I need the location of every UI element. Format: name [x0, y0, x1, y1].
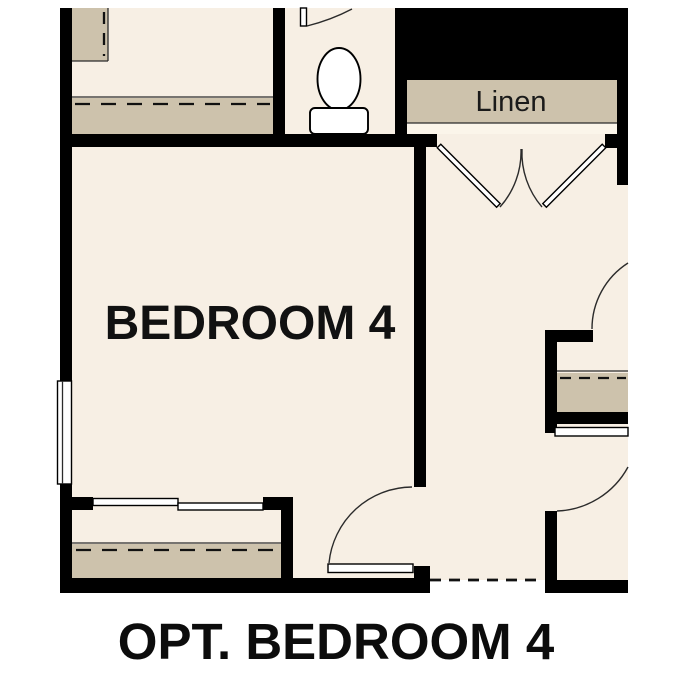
- floor-plan-page: Linen BEDROOM 4 OPT. BEDROOM 4: [0, 0, 687, 687]
- wall-segment: [60, 578, 430, 593]
- hall-floor: [426, 147, 628, 580]
- linen-door-stub: [605, 134, 617, 148]
- wall-segment: [60, 134, 437, 147]
- door-stub: [414, 566, 430, 578]
- wall-segment: [545, 580, 628, 593]
- linen-closet-floor-strip: [407, 123, 617, 134]
- closet-side-wall: [281, 510, 293, 578]
- upper-room-wardrobe: [72, 8, 108, 61]
- hall-closet-wall: [545, 412, 628, 424]
- wall-segment: [60, 484, 72, 593]
- hall-closet-wall: [545, 330, 593, 342]
- toilet-bowl: [318, 48, 361, 110]
- toilet-room-door-leaf: [301, 8, 307, 26]
- floor-plan: Linen BEDROOM 4 OPT. BEDROOM 4: [0, 0, 687, 687]
- closet-stub: [72, 497, 93, 510]
- linen-doorway-floor: [437, 134, 605, 147]
- bedroom-doorway-floor: [414, 487, 426, 566]
- bedroom-hall-wall: [414, 147, 426, 487]
- closet-label-linen: Linen: [476, 86, 547, 118]
- toilet-tank: [310, 108, 368, 134]
- window-frame: [58, 381, 72, 484]
- wall-segment: [60, 8, 72, 381]
- wall-mass: [395, 8, 628, 80]
- sliding-closet-door-panel: [93, 499, 178, 506]
- bedroom-floor: [72, 147, 414, 578]
- hall-closet-door-panel: [555, 428, 628, 437]
- wall-segment: [273, 8, 285, 134]
- bedroom-door-leaf: [328, 564, 413, 573]
- window: [58, 381, 72, 484]
- wall-segment: [617, 80, 628, 185]
- room-label-bedroom-4: BEDROOM 4: [105, 297, 396, 350]
- closet-stub: [263, 497, 293, 510]
- sliding-closet-door-panel: [178, 503, 263, 510]
- plan-caption: OPT. BEDROOM 4: [118, 613, 555, 670]
